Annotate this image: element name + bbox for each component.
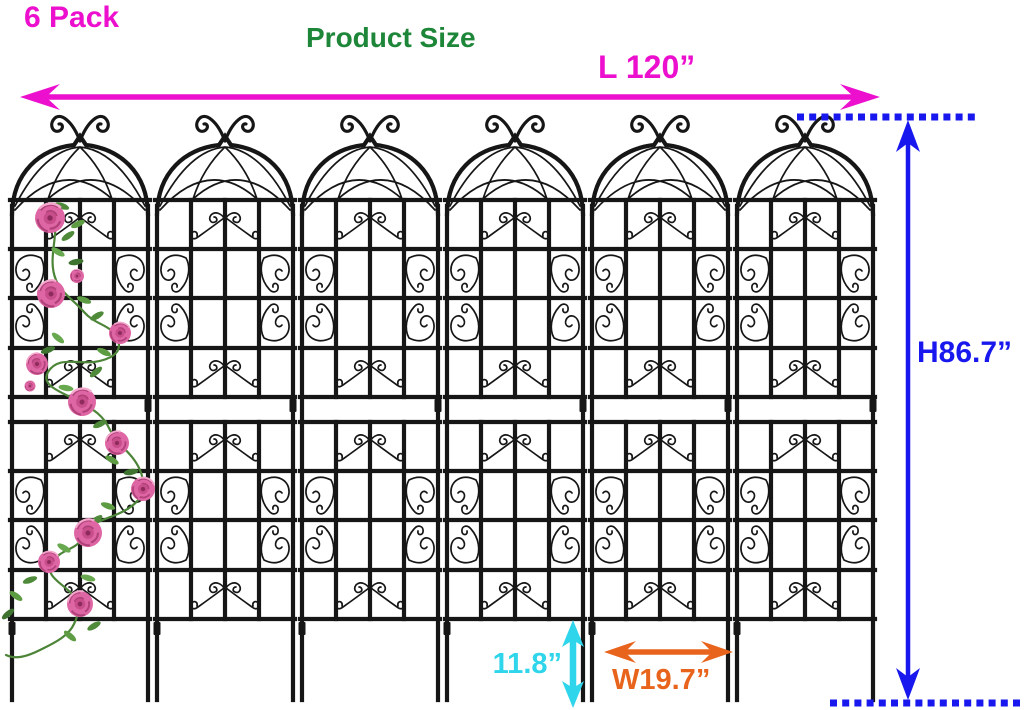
- product-dimension-diagram: 6 Pack Product Size L 120” H86.7” 11.8” …: [0, 0, 1024, 710]
- stake-height-arrow: [562, 620, 584, 708]
- trellis-panel: [299, 117, 442, 700]
- trellis-panel: [444, 117, 587, 700]
- height-label: H86.7”: [917, 338, 1012, 368]
- trellis-panel: [589, 117, 732, 700]
- pack-count-label: 6 Pack: [24, 3, 119, 33]
- panel-width-arrow: [604, 641, 733, 663]
- panel-width-label: W19.7”: [612, 666, 710, 695]
- trellis-panel: [734, 117, 877, 700]
- trellis-panel: [154, 117, 297, 700]
- height-arrow: [896, 120, 920, 700]
- length-arrow: [20, 84, 880, 110]
- trellis-panels: [9, 117, 877, 700]
- product-size-title: Product Size: [306, 24, 476, 52]
- length-label: L 120”: [598, 51, 695, 83]
- trellis-illustration: [0, 0, 1024, 710]
- stake-height-label: 11.8”: [450, 650, 562, 679]
